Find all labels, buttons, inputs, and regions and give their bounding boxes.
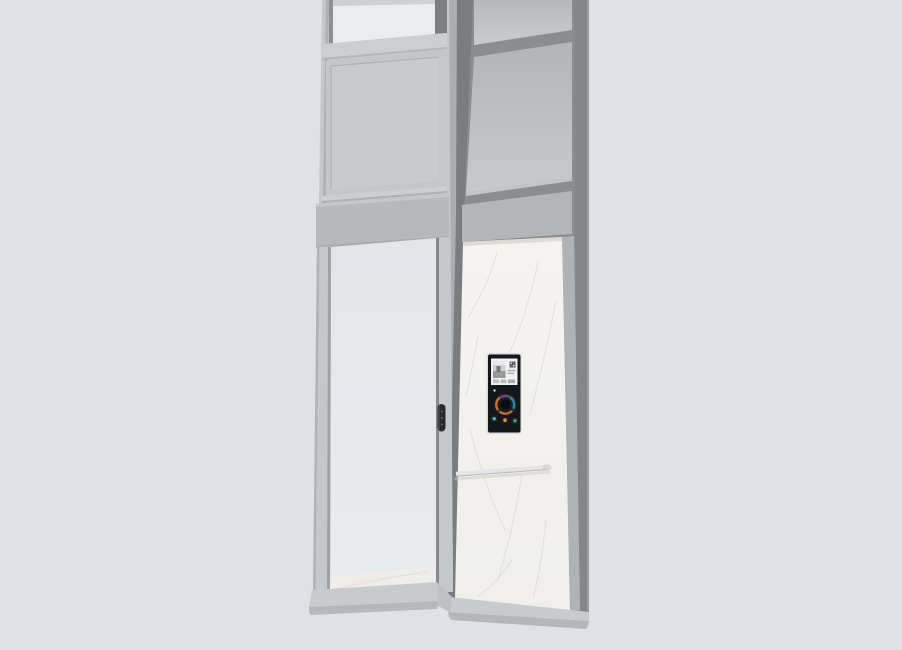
call-button-teal-icon	[493, 417, 496, 420]
cop-screen-photo-detail	[497, 366, 501, 372]
cop-screen-qr-block	[510, 362, 516, 368]
top-window-left-jamb	[329, 0, 333, 45]
cabin-control-panel	[487, 353, 522, 434]
door-handle-highlight	[438, 405, 439, 431]
cop-screen-qr-dot	[511, 363, 512, 364]
top-window-right-stile	[435, 0, 447, 34]
door-handle	[438, 404, 446, 432]
door-handle-dot	[441, 417, 443, 419]
cop-screen-thumb	[501, 380, 507, 384]
cop-indicator-dot	[493, 389, 495, 391]
cop-screen-text-line	[508, 370, 516, 372]
door-handle-dot	[441, 411, 443, 413]
side-panel-middle	[466, 42, 572, 193]
cop-screen-thumb	[508, 380, 515, 384]
shaft-side-face	[446, 0, 589, 629]
cop-screen-photo-floor	[493, 371, 506, 378]
shaft-front-face	[309, 0, 453, 615]
cabin-door-glass	[330, 238, 436, 592]
cop-dial-ring-purple	[502, 396, 509, 397]
front-upper-panel	[326, 51, 444, 196]
call-button-green-icon	[513, 419, 516, 422]
call-button-amber-icon	[503, 418, 507, 422]
lift-render-stage	[0, 0, 902, 650]
side-right-edge-highlight	[587, 0, 589, 611]
lift-render	[0, 0, 902, 650]
cop-screen-qr-dot	[513, 365, 514, 366]
door-handle-dot	[441, 424, 443, 426]
cop-screen-text-line	[508, 373, 515, 375]
front-upper-panel-inner	[331, 57, 439, 190]
cop-screen-thumb	[493, 380, 499, 384]
